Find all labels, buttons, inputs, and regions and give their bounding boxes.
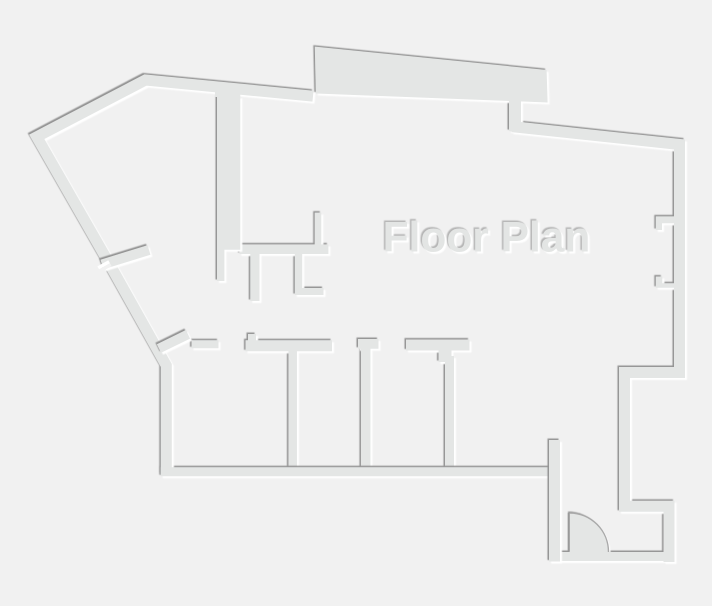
svg-text:Floor Plan: Floor Plan (383, 215, 591, 262)
